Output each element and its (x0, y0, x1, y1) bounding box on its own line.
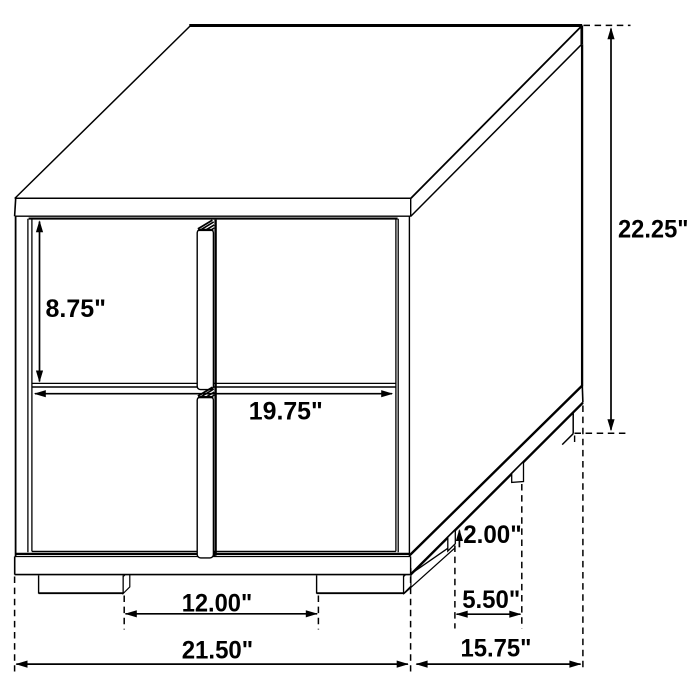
svg-text:15.75": 15.75" (461, 635, 532, 663)
svg-text:2.00": 2.00" (463, 521, 522, 549)
svg-text:21.50": 21.50" (182, 636, 254, 664)
svg-text:19.75": 19.75" (249, 397, 323, 425)
svg-text:22.25": 22.25" (618, 215, 689, 243)
svg-text:8.75": 8.75" (46, 295, 107, 323)
svg-text:5.50": 5.50" (462, 586, 520, 614)
svg-text:12.00": 12.00" (182, 590, 253, 618)
